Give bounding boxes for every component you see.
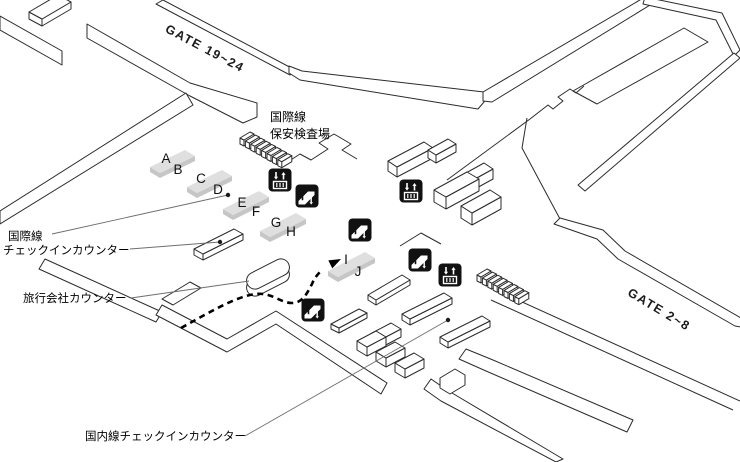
escalator-icon	[302, 299, 325, 322]
southeast-notch-box	[440, 369, 465, 394]
counter-letter-label: B	[173, 162, 182, 177]
escalator-icon	[409, 249, 432, 272]
leader-dot-3	[446, 318, 450, 322]
north-neck-wall	[289, 66, 484, 109]
international-checkin-label-line2: チェックインカウンター	[3, 244, 130, 257]
domestic-counter	[368, 275, 410, 305]
counter-letter-label: J	[355, 264, 362, 279]
counter-letter-label: F	[252, 204, 260, 219]
pier28-southwest-wall-inner	[491, 300, 733, 410]
counter-letter-label: G	[271, 215, 282, 230]
travel-agency-label: 旅行会社カウンター	[23, 291, 127, 305]
west-pier-wall	[0, 16, 62, 65]
escalator-icon	[296, 185, 319, 208]
center-platform-edge	[400, 233, 441, 246]
leader-dot-1	[226, 193, 230, 197]
wing-corner-wall	[643, 0, 740, 56]
international-security-label-line2: 保安検査場	[270, 126, 330, 141]
international-checkin-counter	[194, 229, 243, 260]
domestic-checkin-counter	[402, 293, 452, 325]
counter-letter-label: A	[161, 151, 170, 166]
checkin-island-IJ	[328, 252, 375, 282]
escalator-icon-glyph	[302, 299, 325, 322]
escalator-icon-glyph	[409, 249, 432, 272]
counter-letter-label: C	[196, 171, 206, 186]
domestic-checkin-label: 国内線チェックインカウンター	[85, 429, 246, 443]
southwest-step-wall	[162, 282, 201, 305]
leader-domestic-checkin	[245, 320, 448, 436]
counter-letter-label: D	[213, 182, 223, 197]
counter-letter-label: H	[286, 224, 296, 239]
wing-pier-junction	[522, 118, 560, 219]
checkin-island-GH	[260, 213, 306, 242]
escalator-icon-glyph	[349, 219, 372, 242]
terminal-floor-map: GATE 19~24 GATE 2~8 国際線 保安検査場 国際線 チェックイン…	[0, 0, 740, 462]
center-structure	[428, 139, 456, 163]
counter-letter-label: E	[237, 195, 246, 210]
elevator-icon	[400, 180, 423, 203]
checkin-island-CD	[187, 170, 232, 198]
elevator-icon-glyph	[400, 180, 423, 203]
center-structure	[388, 142, 433, 177]
counter-letter-label: I	[344, 252, 348, 267]
travel-agency-counter	[244, 256, 293, 299]
leader-international-checkin-1	[52, 195, 228, 234]
international-security-label-line1: 国際線	[270, 109, 306, 124]
escalator-icon	[349, 219, 372, 242]
domestic-counter	[331, 309, 367, 333]
wing-north-wall	[483, 0, 655, 102]
leader-dot-2	[218, 240, 222, 244]
northwest-stub-building	[29, 0, 71, 26]
southwest-entrance-wall	[39, 259, 162, 322]
annotation-lines	[52, 193, 450, 436]
domestic-security-lanes	[477, 269, 529, 305]
escalator-icon-glyph	[296, 185, 319, 208]
elevator-icon	[439, 264, 462, 287]
elevator-icon-glyph	[439, 264, 462, 287]
pier28-northeast-wall	[554, 218, 740, 327]
elevator-icon-glyph	[269, 169, 292, 192]
elevator-icon	[269, 169, 292, 192]
wing-southeast-wall	[578, 53, 740, 191]
international-checkin-label-line1: 国際線	[8, 229, 43, 243]
terminal-map-svg: GATE 19~24 GATE 2~8 国際線 保安検査場 国際線 チェックイン…	[0, 0, 740, 462]
